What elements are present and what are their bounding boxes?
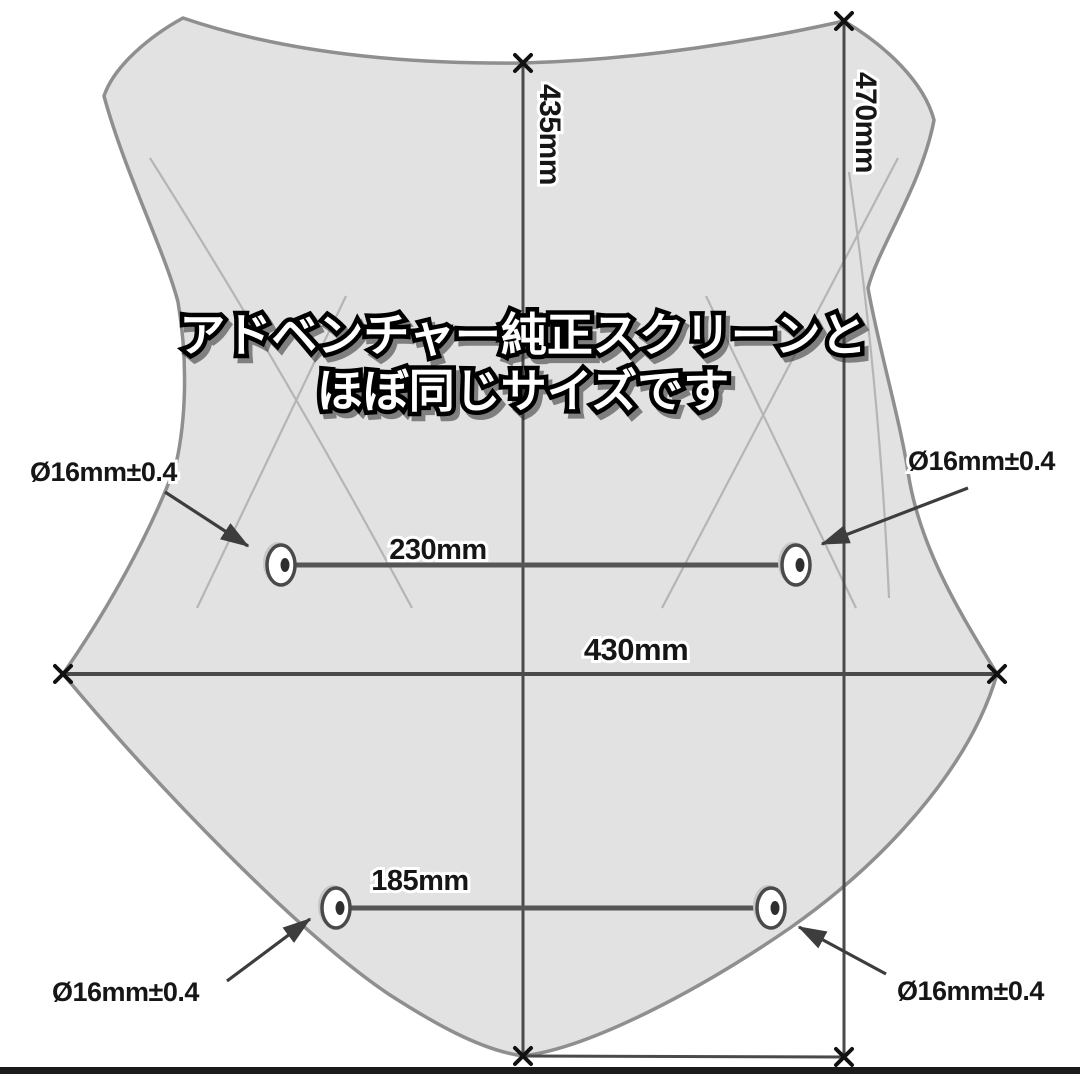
label-max-width: 430mm (584, 632, 688, 667)
label-hole-lower-right: Ø16mm±0.4 (897, 976, 1044, 1006)
arrow-lower-left (227, 919, 310, 981)
caption-line-1: アドベンチャー純正スクリーンと (179, 309, 866, 361)
label-hole-upper-right: Ø16mm±0.4 (908, 446, 1055, 476)
label-hole-lower-left: Ø16mm±0.4 (52, 977, 199, 1007)
label-right-height: 470mm (849, 72, 882, 173)
diagram-svg: 435mm 470mm 430mm 230mm 185mm Ø16mm±0.4 … (0, 0, 1080, 1074)
bottom-offset-line (523, 1056, 844, 1057)
windscreen-dimension-diagram: 435mm 470mm 430mm 230mm 185mm Ø16mm±0.4 … (0, 0, 1080, 1074)
label-lower-hole-spacing: 185mm (371, 865, 468, 897)
windscreen-outline (63, 18, 997, 1056)
caption-line-2: ほぼ同じサイズです (317, 365, 730, 417)
label-upper-hole-spacing: 230mm (389, 534, 486, 566)
bottom-border-bar (0, 1067, 1080, 1074)
label-center-height: 435mm (533, 84, 566, 185)
label-hole-upper-left: Ø16mm±0.4 (30, 457, 177, 487)
